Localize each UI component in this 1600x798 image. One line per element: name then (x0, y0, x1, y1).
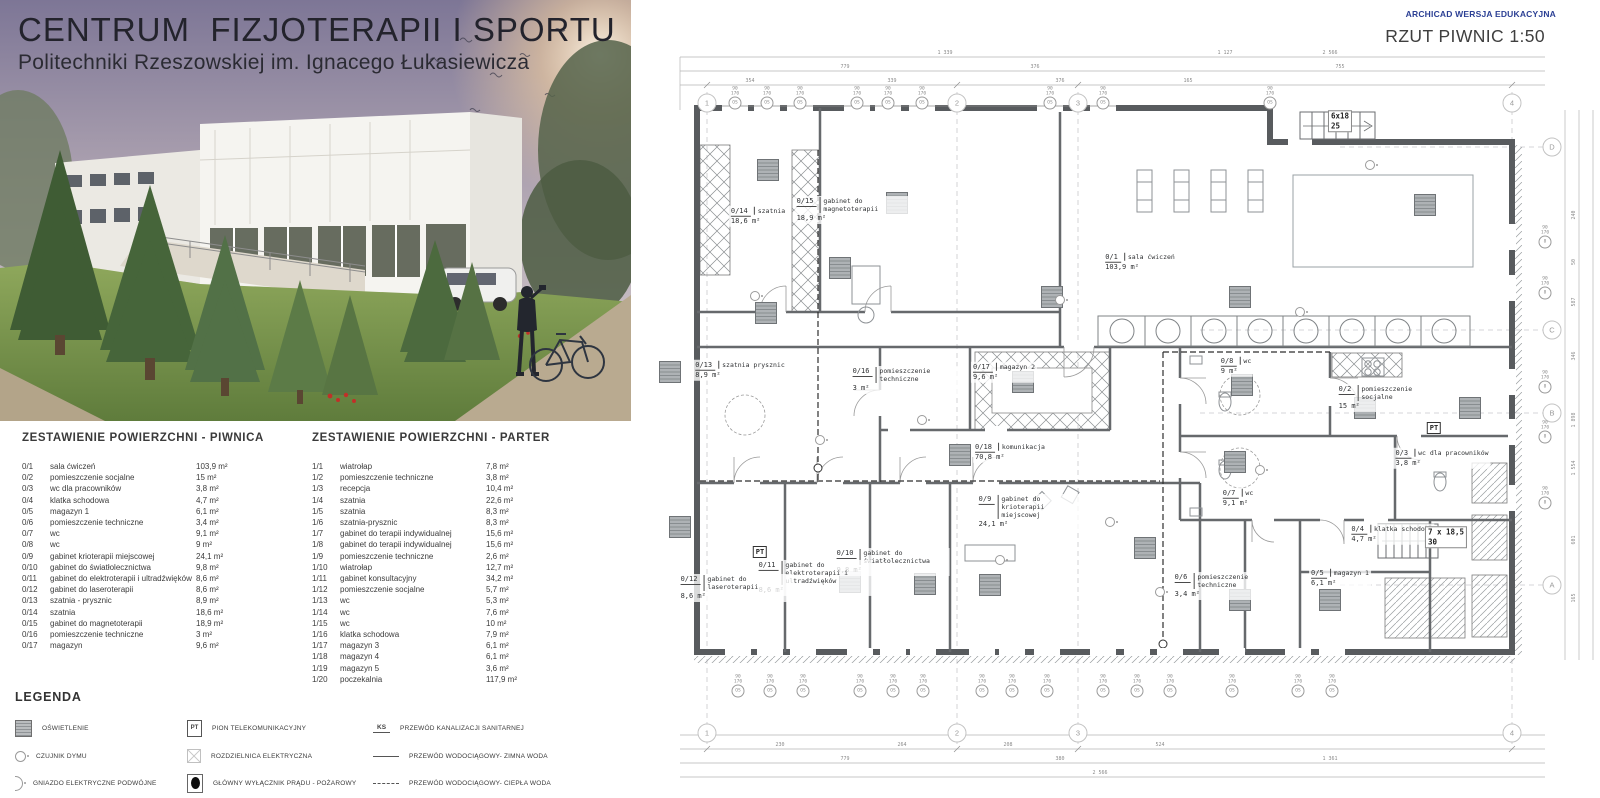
room-area: 8,9 m² (196, 595, 266, 606)
legend-label: OŚWIETLENIE (42, 725, 89, 732)
room-name: gabinet krioterapii miejscowej (50, 551, 196, 562)
room-name: wc (340, 618, 486, 629)
room-name: pomieszczenie socjalne (340, 584, 486, 595)
table-rows: 1/1 wiatrołap 7,8 m² 1/2 pomieszczenie t… (312, 461, 556, 685)
room-id: 0/13 (22, 595, 50, 606)
legend-item-lighting: OŚWIETLENIE (15, 718, 89, 738)
room-id: 1/9 (312, 551, 340, 562)
footing-hatch (694, 656, 1515, 663)
room-area: 5,7 m² (486, 584, 556, 595)
room-area: 22,6 m² (486, 495, 556, 506)
room-name: gabinet do elektroterapii i ultradźwiękó… (50, 573, 196, 584)
room-name: klatka schodowa (340, 629, 486, 640)
table-row: 1/10 wiatrołap 12,7 m² (312, 562, 556, 573)
room-id: 1/7 (312, 528, 340, 539)
room-area: 8,6 m² (196, 573, 266, 584)
legend-label: PRZEWÓD WODOCIĄGOWY- ZIMNA WODA (409, 753, 548, 760)
table-row: 1/15 wc 10 m² (312, 618, 556, 629)
room-name: pomieszczenie techniczne (340, 551, 486, 562)
room-id: 0/17 (22, 640, 50, 651)
plan-title: RZUT PIWNIC 1:50 (1385, 26, 1545, 47)
room-area: 117,9 m² (486, 674, 556, 685)
room-id: 1/5 (312, 506, 340, 517)
room-name: magazyn 1 (50, 506, 196, 517)
grid-lines (707, 92, 1545, 744)
room-area: 9,6 m² (196, 640, 266, 651)
electrical-panel-icon (187, 749, 201, 763)
room-area: 6,1 m² (486, 651, 556, 662)
room-name: gabinet do terapii indywidualnej (340, 528, 486, 539)
room-name: wc (340, 595, 486, 606)
room-id: 0/8 (22, 539, 50, 550)
legend-label: GNIAZDO ELEKTRYCZNE PODWÓJNE (33, 780, 157, 787)
room-area: 24,1 m² (196, 551, 266, 562)
room-area: 4,7 m² (196, 495, 266, 506)
room-id: 1/13 (312, 595, 340, 606)
room-name: magazyn 4 (340, 651, 486, 662)
room-area: 9,8 m² (196, 562, 266, 573)
room-area: 5,3 m² (486, 595, 556, 606)
room-id: 1/3 (312, 483, 340, 494)
room-id: 1/16 (312, 629, 340, 640)
room-name: wiatrołap (340, 562, 486, 573)
room-id: 0/1 (22, 461, 50, 472)
table-row: 1/19 magazyn 5 3,6 m² (312, 663, 556, 674)
area-table-piwnica: ZESTAWIENIE POWIERZCHNI - PIWNICA 0/1 sa… (22, 432, 266, 651)
riser-symbols (814, 464, 1167, 648)
legend-label: PION TELEKOMUNIKACYJNY (212, 725, 306, 732)
pt-riser-icon: PT (187, 720, 202, 737)
cold-water-line-icon (373, 756, 399, 757)
table-row: 1/1 wiatrołap 7,8 m² (312, 461, 556, 472)
room-id: 1/2 (312, 472, 340, 483)
table-row: 1/2 pomieszczenie techniczne 3,8 m² (312, 472, 556, 483)
room-id: 1/17 (312, 640, 340, 651)
table-row: 0/7 wc 9,1 m² (22, 528, 266, 539)
room-id: 0/16 (22, 629, 50, 640)
room-area: 7,8 m² (486, 461, 556, 472)
room-area: 10,4 m² (486, 483, 556, 494)
table-row: 0/14 szatnia 18,6 m² (22, 607, 266, 618)
room-area: 6,1 m² (196, 506, 266, 517)
legend-title: LEGENDA (15, 690, 625, 704)
board-title: CENTRUM FIZJOTERAPII I SPORTU (18, 12, 616, 48)
room-id: 0/10 (22, 562, 50, 573)
room-name: szatnia (50, 607, 196, 618)
legend-label: PRZEWÓD KANALIZACJI SANITARNEJ (400, 725, 524, 732)
room-id: 1/14 (312, 607, 340, 618)
floor-plan-panel: ARCHICAD WERSJA EDUKACYJNA RZUT PIWNIC 1… (640, 0, 1600, 798)
room-area: 9 m² (196, 539, 266, 550)
legend-item-pt: PT PION TELEKOMUNIKACYJNY (187, 718, 306, 738)
room-area: 6,1 m² (486, 640, 556, 651)
room-area: 15,6 m² (486, 528, 556, 539)
room-area: 3 m² (196, 629, 266, 640)
furniture (852, 266, 1446, 561)
room-area: 15,6 m² (486, 539, 556, 550)
room-id: 1/6 (312, 517, 340, 528)
room-name: wc (340, 607, 486, 618)
legend-item-smoke-detector: CZUJNIK DYMU (15, 746, 87, 766)
room-id: 0/15 (22, 618, 50, 629)
room-id: 1/20 (312, 674, 340, 685)
presentation-board: { "header": { "title": "CENTRUM FIZJOTER… (0, 0, 1600, 798)
legend-item-ks: KS PRZEWÓD KANALIZACJI SANITARNEJ (373, 718, 524, 738)
hot-water-line-icon (373, 783, 399, 784)
room-name: gabinet do światłolecznictwa (50, 562, 196, 573)
room-name: pomieszczenie techniczne (50, 517, 196, 528)
table-row: 0/4 klatka schodowa 4,7 m² (22, 495, 266, 506)
room-name: szatnia-prysznic (340, 517, 486, 528)
room-name: pomieszczenie socjalne (50, 472, 196, 483)
room-id: 0/9 (22, 551, 50, 562)
table-row: 0/12 gabinet do laseroterapii 8,6 m² (22, 584, 266, 595)
table-row: 1/16 klatka schodowa 7,9 m² (312, 629, 556, 640)
legend-label: ROZDZIELNICA ELEKTRYCZNA (211, 753, 312, 760)
area-table-parter: ZESTAWIENIE POWIERZCHNI - PARTER 1/1 wia… (312, 432, 556, 685)
table-row: 1/13 wc 5,3 m² (312, 595, 556, 606)
table-row: 1/5 szatnia 8,3 m² (312, 506, 556, 517)
room-name: gabinet do laseroterapii (50, 584, 196, 595)
table-row: 0/16 pomieszczenie techniczne 3 m² (22, 629, 266, 640)
smoke-detector-icon (15, 751, 26, 762)
room-name: szatnia (340, 506, 486, 517)
lighting-icon (15, 720, 32, 737)
board-subtitle: Politechniki Rzeszowskiej im. Ignacego Ł… (18, 51, 616, 75)
table-row: 0/15 gabinet do magnetoterapii 18,9 m² (22, 618, 266, 629)
sanitary-line-icon: KS (373, 724, 390, 733)
stairs (1300, 112, 1438, 558)
table-row: 1/6 szatnia-prysznic 8,3 m² (312, 517, 556, 528)
room-area: 7,6 m² (486, 607, 556, 618)
room-name: magazyn (50, 640, 196, 651)
room-area: 3,8 m² (486, 472, 556, 483)
room-id: 1/1 (312, 461, 340, 472)
room-area: 8,6 m² (196, 584, 266, 595)
room-area: 103,9 m² (196, 461, 266, 472)
table-rows: 0/1 sala ćwiczeń 103,9 m² 0/2 pomieszcze… (22, 461, 266, 651)
room-name: gabinet do magnetoterapii (50, 618, 196, 629)
table-row: 1/17 magazyn 3 6,1 m² (312, 640, 556, 651)
room-area: 3,8 m² (196, 483, 266, 494)
room-name: recepcja (340, 483, 486, 494)
floor-plan-drawing (640, 0, 1600, 798)
room-id: 0/2 (22, 472, 50, 483)
table-row: 1/4 szatnia 22,6 m² (312, 495, 556, 506)
room-id: 0/6 (22, 517, 50, 528)
room-area: 8,3 m² (486, 506, 556, 517)
table-row: 1/11 gabinet konsultacyjny 34,2 m² (312, 573, 556, 584)
double-socket-icon (15, 776, 23, 791)
table-row: 0/9 gabinet krioterapii miejscowej 24,1 … (22, 551, 266, 562)
room-id: 1/11 (312, 573, 340, 584)
room-name: poczekalnia (340, 674, 486, 685)
room-area: 34,2 m² (486, 573, 556, 584)
room-id: 0/4 (22, 495, 50, 506)
legend-label: GŁÓWNY WYŁĄCZNIK PRĄDU - POŻAROWY (213, 780, 356, 787)
sala-equipment (1098, 170, 1473, 346)
room-area: 18,9 m² (196, 618, 266, 629)
room-name: gabinet do terapii indywidualnej (340, 539, 486, 550)
room-name: wiatrołap (340, 461, 486, 472)
room-name: magazyn 3 (340, 640, 486, 651)
legend-item-hot-water: PRZEWÓD WODOCIĄGOWY- CIEPŁA WODA (373, 773, 551, 793)
room-name: wc (50, 528, 196, 539)
room-name: szatnia - prysznic (50, 595, 196, 606)
room-id: 1/4 (312, 495, 340, 506)
table-row: 1/3 recepcja 10,4 m² (312, 483, 556, 494)
archicad-watermark: ARCHICAD WERSJA EDUKACYJNA (1406, 9, 1556, 19)
table-row: 0/13 szatnia - prysznic 8,9 m² (22, 595, 266, 606)
room-id: 0/11 (22, 573, 50, 584)
table-title: ZESTAWIENIE POWIERZCHNI - PARTER (312, 432, 556, 444)
table-row: 0/17 magazyn 9,6 m² (22, 640, 266, 651)
table-row: 0/11 gabinet do elektroterapii i ultradź… (22, 573, 266, 584)
legend: LEGENDA OŚWIETLENIE CZUJNIK DYMU GNIAZDO… (15, 690, 625, 794)
room-name: szatnia (340, 495, 486, 506)
room-id: 1/10 (312, 562, 340, 573)
table-row: 0/8 wc 9 m² (22, 539, 266, 550)
room-area: 10 m² (486, 618, 556, 629)
legend-label: CZUJNIK DYMU (36, 753, 87, 760)
room-area: 3,4 m² (196, 517, 266, 528)
room-id: 1/12 (312, 584, 340, 595)
room-id: 0/14 (22, 607, 50, 618)
table-row: 1/20 poczekalnia 117,9 m² (312, 674, 556, 685)
main-power-switch-icon (187, 774, 203, 793)
room-area: 15 m² (196, 472, 266, 483)
room-name: magazyn 5 (340, 663, 486, 674)
legend-item-double-socket: GNIAZDO ELEKTRYCZNE PODWÓJNE (15, 773, 157, 793)
room-id: 0/12 (22, 584, 50, 595)
room-area: 2,6 m² (486, 551, 556, 562)
table-row: 0/6 pomieszczenie techniczne 3,4 m² (22, 517, 266, 528)
table-row: 0/1 sala ćwiczeń 103,9 m² (22, 461, 266, 472)
table-title: ZESTAWIENIE POWIERZCHNI - PIWNICA (22, 432, 266, 444)
room-area: 8,3 m² (486, 517, 556, 528)
room-name: pomieszczenie techniczne (340, 472, 486, 483)
legend-item-cold-water: PRZEWÓD WODOCIĄGOWY- ZIMNA WODA (373, 746, 548, 766)
legend-item-main-switch: GŁÓWNY WYŁĄCZNIK PRĄDU - POŻAROWY (187, 773, 356, 793)
room-name: sala ćwiczeń (50, 461, 196, 472)
room-id: 0/5 (22, 506, 50, 517)
room-area: 12,7 m² (486, 562, 556, 573)
building-render-photo: CENTRUM FIZJOTERAPII I SPORTU Politechni… (0, 0, 631, 421)
room-id: 1/18 (312, 651, 340, 662)
board-header: CENTRUM FIZJOTERAPII I SPORTU Politechni… (18, 12, 616, 75)
room-id: 1/8 (312, 539, 340, 550)
table-row: 0/5 magazyn 1 6,1 m² (22, 506, 266, 517)
room-area: 18,6 m² (196, 607, 266, 618)
room-name: wc dla pracowników (50, 483, 196, 494)
room-id: 0/3 (22, 483, 50, 494)
table-row: 1/9 pomieszczenie techniczne 2,6 m² (312, 551, 556, 562)
room-id: 1/15 (312, 618, 340, 629)
room-area: 9,1 m² (196, 528, 266, 539)
room-area: 3,6 m² (486, 663, 556, 674)
room-name: klatka schodowa (50, 495, 196, 506)
room-area: 7,9 m² (486, 629, 556, 640)
room-id: 1/19 (312, 663, 340, 674)
room-id: 0/7 (22, 528, 50, 539)
legend-item-electrical-panel: ROZDZIELNICA ELEKTRYCZNA (187, 746, 312, 766)
room-name: pomieszczenie techniczne (50, 629, 196, 640)
legend-label: PRZEWÓD WODOCIĄGOWY- CIEPŁA WODA (409, 780, 551, 787)
table-row: 0/10 gabinet do światłolecznictwa 9,8 m² (22, 562, 266, 573)
table-row: 0/2 pomieszczenie socjalne 15 m² (22, 472, 266, 483)
room-name: gabinet konsultacyjny (340, 573, 486, 584)
table-row: 0/3 wc dla pracowników 3,8 m² (22, 483, 266, 494)
room-name: wc (50, 539, 196, 550)
table-row: 1/8 gabinet do terapii indywidualnej 15,… (312, 539, 556, 550)
table-row: 1/7 gabinet do terapii indywidualnej 15,… (312, 528, 556, 539)
table-row: 1/12 pomieszczenie socjalne 5,7 m² (312, 584, 556, 595)
table-row: 1/18 magazyn 4 6,1 m² (312, 651, 556, 662)
footing-hatch (1515, 145, 1522, 655)
table-row: 1/14 wc 7,6 m² (312, 607, 556, 618)
